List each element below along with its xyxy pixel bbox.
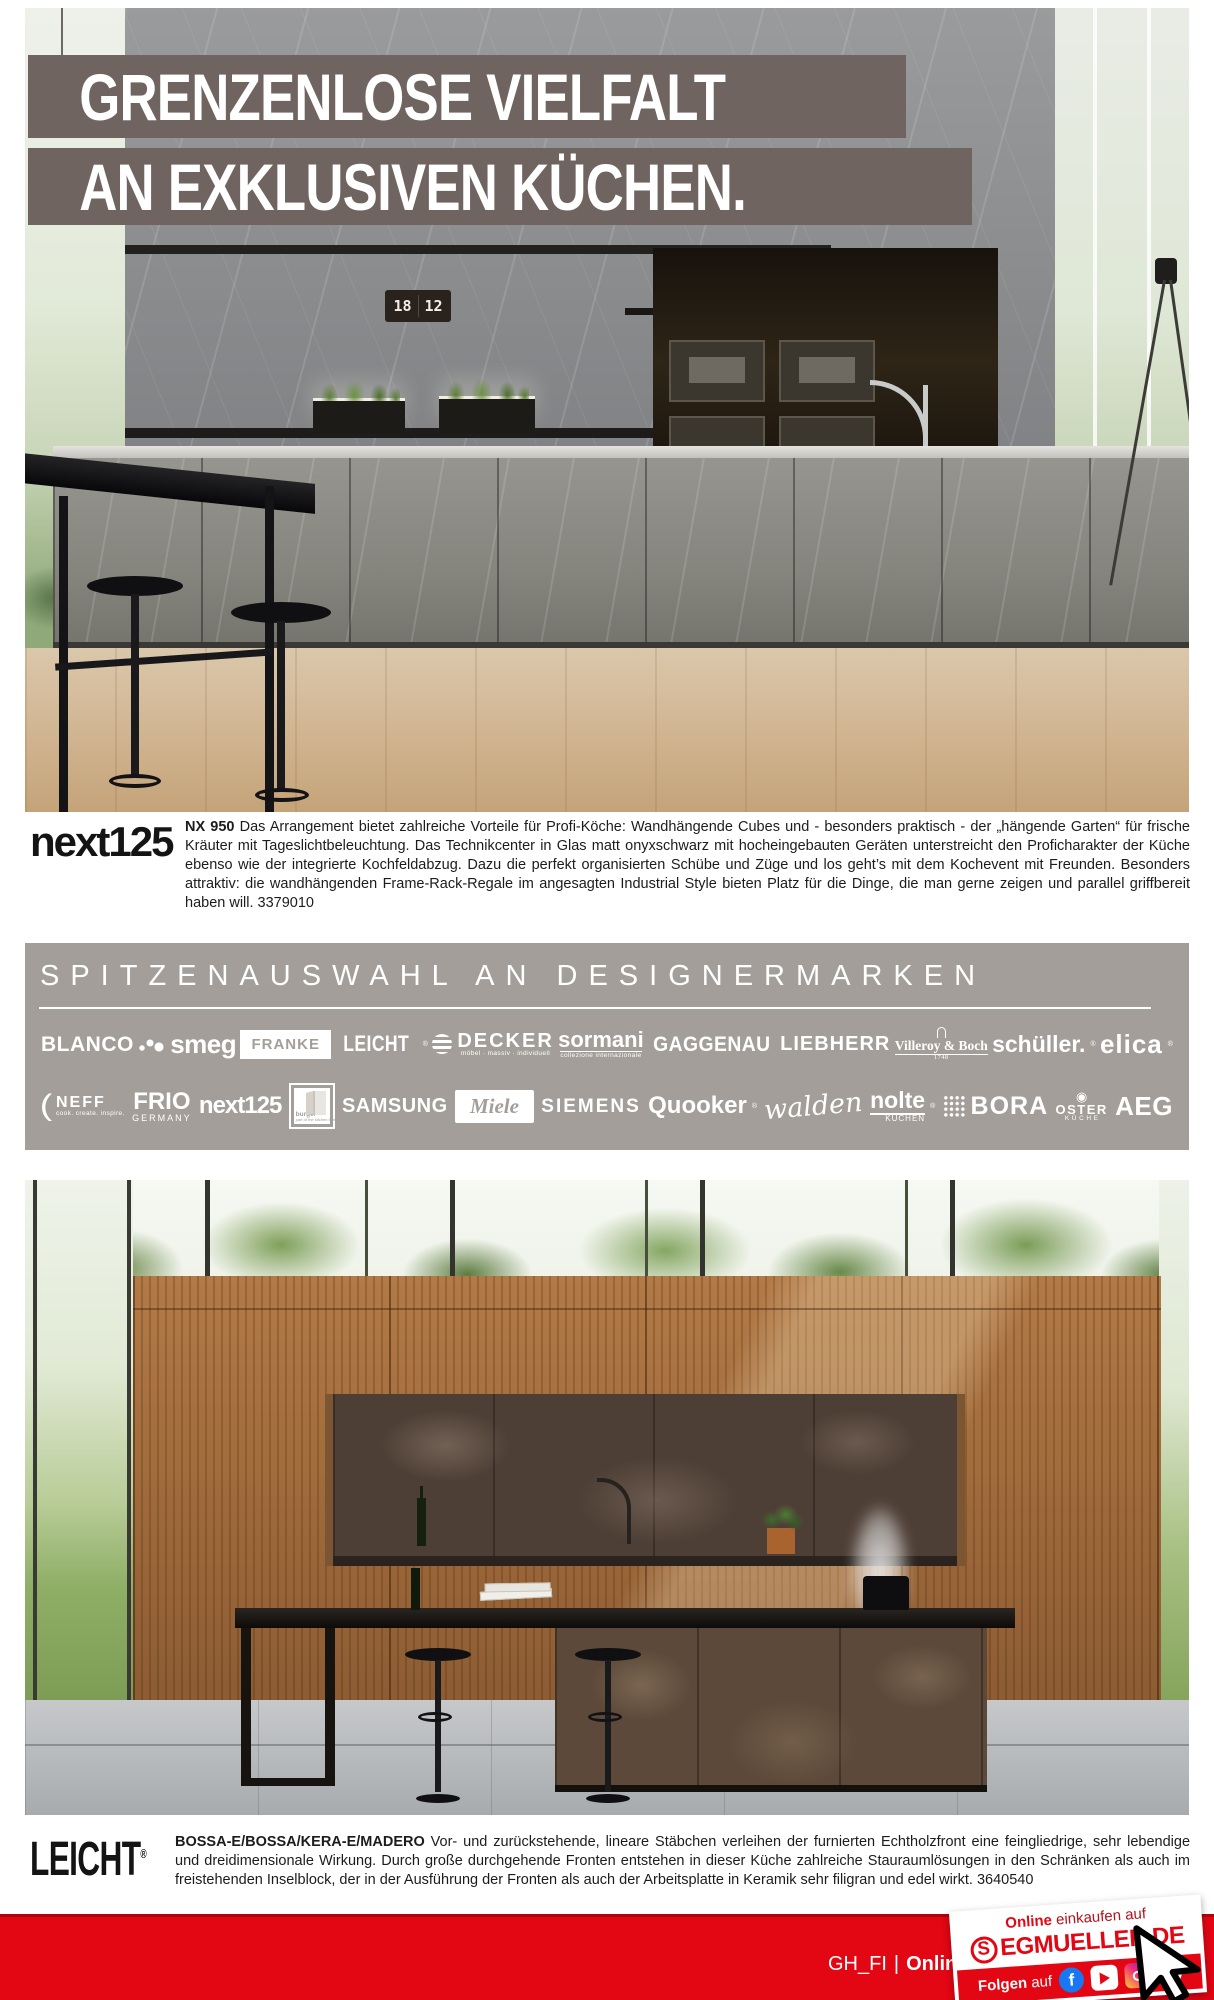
leicht-logo: LEICHT® bbox=[30, 1832, 147, 1887]
wood-floor bbox=[25, 648, 1189, 812]
designer-brands-band: SPITZENAUSWAHL AN DESIGNERMARKEN BLANCO … bbox=[25, 943, 1189, 1150]
brand-logo-oster: ◉OSTERK Ü C H E bbox=[1055, 1090, 1107, 1123]
brand-logo-blanco: BLANCO bbox=[41, 1034, 134, 1055]
segmueller-s-icon: S bbox=[969, 1935, 998, 1964]
next125-body-text: Das Arrangement bietet zahlreiche Vortei… bbox=[185, 819, 1190, 911]
hanging-herb-garden bbox=[313, 398, 405, 434]
page-code-text: GH_FI bbox=[828, 1953, 887, 1975]
brand-logo-decker: DECKERmöbel · massiv · individuell bbox=[432, 1031, 553, 1058]
potted-plant bbox=[767, 1528, 795, 1554]
built-in-oven bbox=[669, 340, 765, 402]
hanging-herb-garden bbox=[439, 396, 535, 434]
flip-clock: 1812 bbox=[385, 290, 451, 322]
brand-logo-elica: elica® bbox=[1100, 1031, 1173, 1057]
brand-logo-bora: BORA bbox=[943, 1094, 1049, 1119]
brand-logo-siemens: SIEMENS bbox=[541, 1097, 641, 1116]
smeg-dots-icon bbox=[138, 1034, 165, 1054]
next125-logo: next125 bbox=[30, 818, 172, 866]
brand-logo-leicht: LEICHT® bbox=[335, 1033, 428, 1055]
brand-band-title: SPITZENAUSWAHL AN DESIGNERMARKEN bbox=[40, 960, 986, 993]
brand-logo-neff: ( NEFFcook. create. inspire. bbox=[41, 1091, 125, 1121]
glazing-left bbox=[25, 1180, 133, 1702]
next125-model-lead: NX 950 bbox=[185, 819, 234, 835]
bar-stool bbox=[231, 602, 331, 812]
table-leg bbox=[59, 496, 68, 812]
built-in-oven bbox=[779, 340, 875, 402]
brand-logo-aeg: AEG bbox=[1115, 1093, 1173, 1119]
tech-center-cabinet bbox=[653, 248, 998, 456]
facebook-icon[interactable]: f bbox=[1058, 1967, 1085, 1994]
island-countertop bbox=[53, 446, 1189, 458]
stool bbox=[575, 1648, 641, 1808]
leicht-kitchen-photo bbox=[25, 1180, 1189, 1815]
brand-logo-row-1: BLANCO smeg FRANKE LEICHT® DECKERmöbel ·… bbox=[41, 1019, 1173, 1069]
bottle-on-table bbox=[411, 1568, 420, 1610]
tree-trunk bbox=[905, 1180, 908, 1280]
page-code: GH_FI|Online bbox=[828, 1953, 968, 1976]
leicht-description: BOSSA-E/BOSSA/KERA-E/MADERO Vor- und zur… bbox=[175, 1833, 1190, 1890]
brand-logo-frio: FRIOGERMANY bbox=[132, 1090, 192, 1123]
headline-band-2: AN EXKLUSIVEN KÜCHEN. bbox=[28, 148, 972, 225]
bora-dots-icon bbox=[943, 1095, 966, 1118]
leicht-reg-mark: ® bbox=[140, 1846, 146, 1861]
burger-door-icon bbox=[313, 1091, 326, 1115]
tree-trunk bbox=[645, 1180, 648, 1280]
black-countertop bbox=[235, 1608, 1015, 1628]
tree-trunk bbox=[365, 1180, 368, 1280]
brand-logo-walden: walden bbox=[764, 1093, 863, 1120]
table-leg bbox=[241, 1628, 251, 1786]
headline-band-1: GRENZENLOSE VIELFALT bbox=[28, 55, 906, 138]
leicht-model-lead: BOSSA-E/BOSSA/KERA-E/MADERO bbox=[175, 1834, 425, 1850]
clock-minutes: 12 bbox=[425, 297, 443, 315]
brand-logo-miele: Miele bbox=[455, 1090, 534, 1123]
table-leg bbox=[325, 1628, 335, 1786]
decker-sphere-icon bbox=[432, 1034, 452, 1054]
page-code-separator: | bbox=[887, 1953, 906, 1975]
villeroy-boch-icon bbox=[937, 1027, 946, 1038]
brand-band-underline bbox=[39, 1007, 1151, 1009]
wine-bottle bbox=[417, 1498, 426, 1546]
next125-description: NX 950 Das Arrangement bietet zahlreiche… bbox=[185, 818, 1190, 913]
headline-line1: GRENZENLOSE VIELFALT bbox=[28, 59, 725, 135]
footer-bar: GH_FI|Online Online einkaufen auf S EGMU… bbox=[0, 1914, 1214, 2000]
mouse-cursor-icon bbox=[1118, 1916, 1214, 2000]
glazing-right bbox=[1159, 1180, 1189, 1702]
brand-logo-franke: FRANKE bbox=[240, 1030, 331, 1059]
brand-logo-gaggenau: GAGGENAU bbox=[648, 1034, 776, 1055]
brand-logo-next125: next125 bbox=[199, 1094, 281, 1118]
brand-logo-schueller: schüller.® bbox=[992, 1033, 1096, 1056]
kettle bbox=[863, 1576, 909, 1610]
brand-logo-quooker: Quooker® bbox=[648, 1094, 757, 1118]
oster-ring-icon: ◉ bbox=[1076, 1090, 1087, 1103]
table-leg-bar bbox=[241, 1778, 335, 1786]
clock-hours: 18 bbox=[393, 297, 411, 315]
youtube-icon[interactable] bbox=[1090, 1964, 1119, 1991]
stool bbox=[405, 1648, 471, 1808]
brand-logo-nolte: nolteKÜCHEN® bbox=[870, 1089, 935, 1123]
brand-logo-row-2: ( NEFFcook. create. inspire. FRIOGERMANY… bbox=[41, 1075, 1173, 1137]
brand-logo-sormani: sormanicollezione internazionale bbox=[558, 1029, 644, 1060]
catalog-page: 1812 GRENZENLOSE VIELFALT AN EXKLU bbox=[0, 0, 1214, 2000]
brand-logo-liebherr: LIEBHERR bbox=[780, 1034, 890, 1054]
bar-stool bbox=[87, 576, 183, 812]
brand-logo-samsung: SAMSUNG bbox=[342, 1096, 448, 1116]
headline-line2: AN EXKLUSIVEN KÜCHEN. bbox=[28, 149, 746, 225]
brand-logo-burger: burgerpart of the kitchen family bbox=[289, 1083, 335, 1129]
neff-paren-icon: ( bbox=[40, 1091, 53, 1121]
brand-logo-villeroy-boch: Villeroy & Boch1748 bbox=[895, 1027, 988, 1062]
brand-logo-smeg: smeg bbox=[138, 1031, 236, 1057]
follow-label: Folgen auf bbox=[977, 1973, 1052, 1995]
